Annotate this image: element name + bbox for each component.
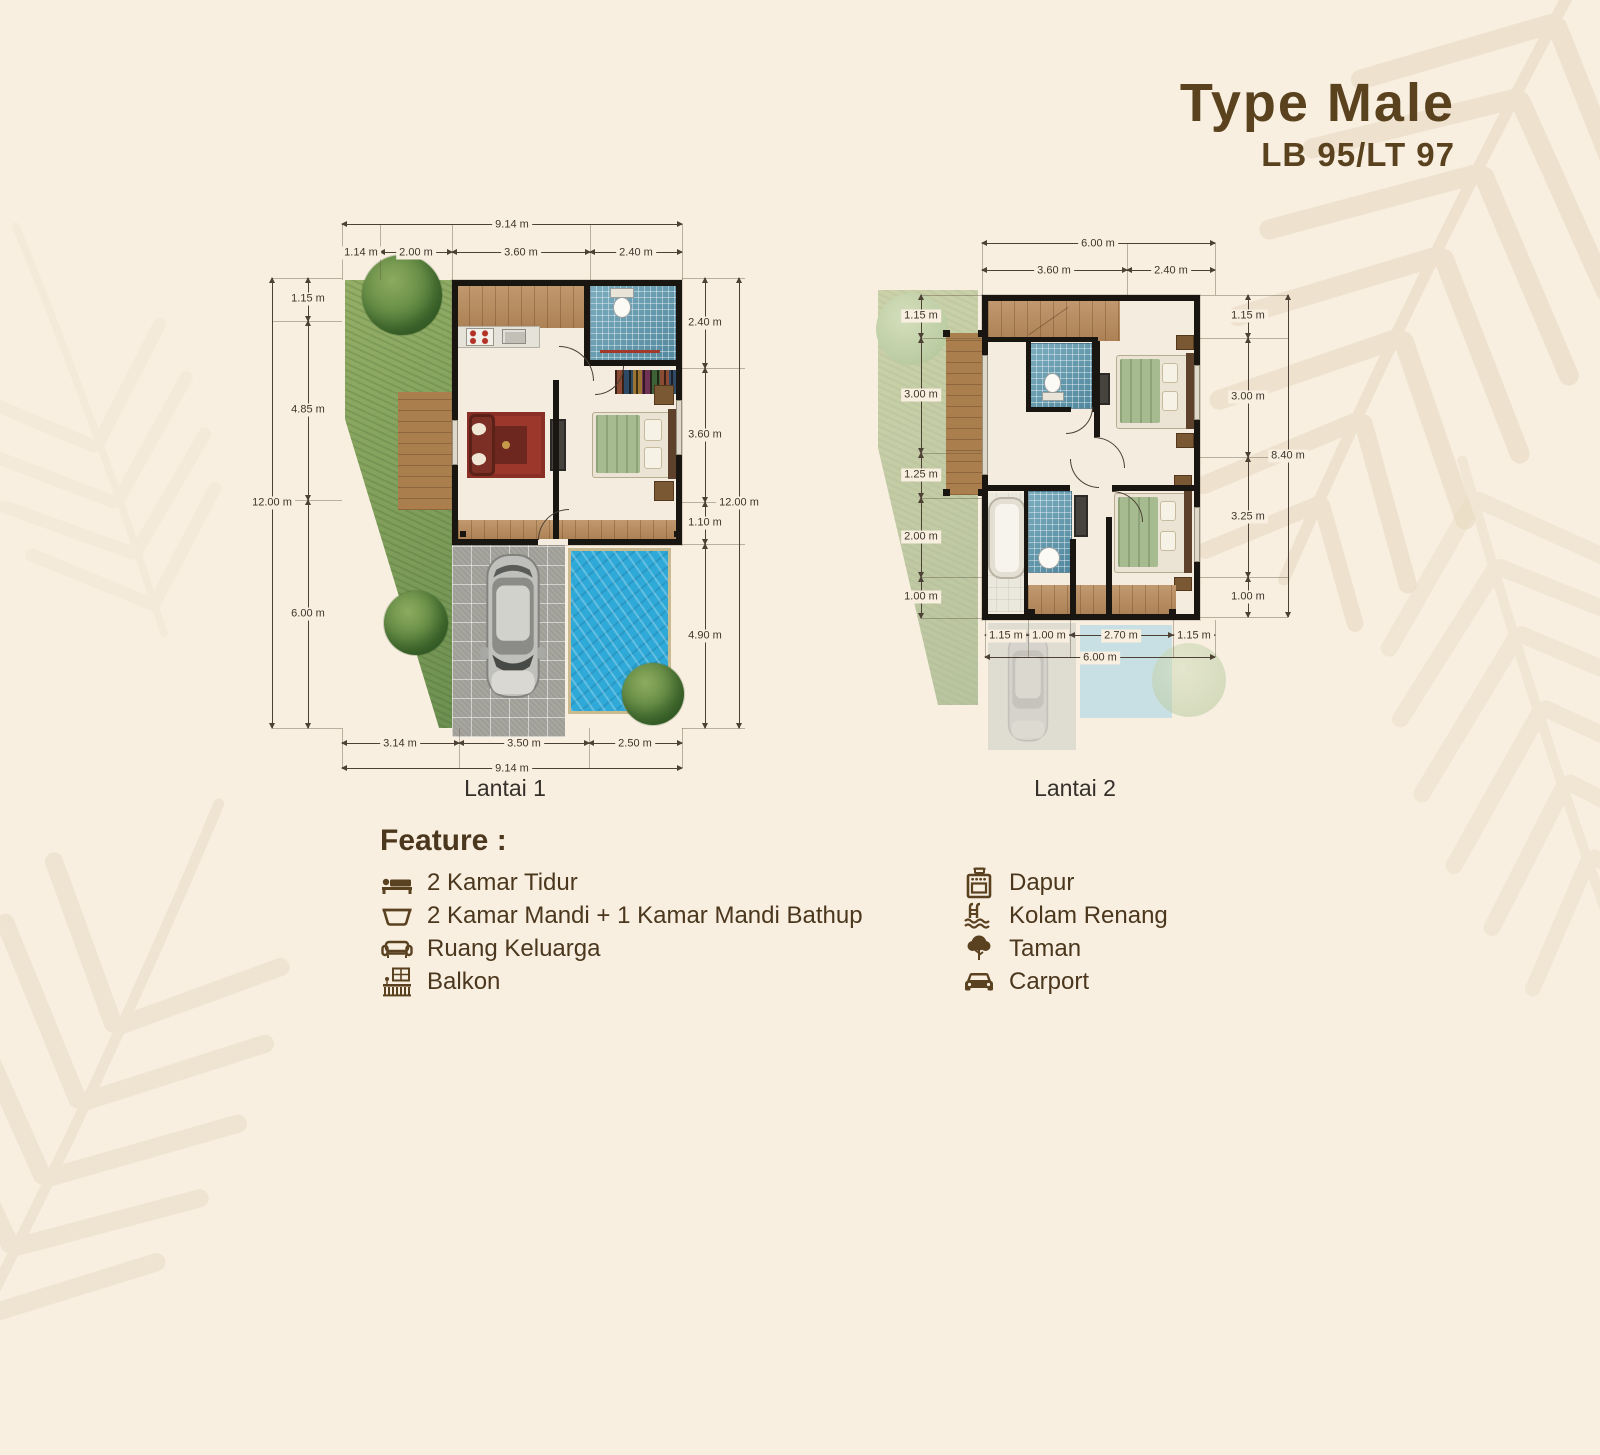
extension-line <box>1215 620 1216 657</box>
dim-label: 1.15 m <box>288 293 328 306</box>
extension-line <box>921 295 982 296</box>
dim-label: 1.00 m <box>1228 591 1268 604</box>
wall <box>982 337 1098 342</box>
extension-line <box>921 577 982 578</box>
balcony-deck <box>946 333 984 495</box>
feature-label: Kolam Renang <box>1009 902 1168 930</box>
dim-label: 2.70 m <box>1101 630 1141 643</box>
palm-shadow-icon <box>1296 392 1600 1068</box>
bed-headboard <box>1186 353 1194 429</box>
dim-label: 2.40 m <box>685 317 725 330</box>
dim-label: 3.60 m <box>685 429 725 442</box>
wall <box>452 539 538 545</box>
feature-item: 2 Kamar Tidur <box>380 866 863 899</box>
wall <box>1026 341 1031 412</box>
tree <box>622 663 684 725</box>
wash-basin <box>1038 547 1060 569</box>
feature-label: Taman <box>1009 935 1081 963</box>
toilet <box>1044 373 1061 393</box>
page-title: Type Male <box>1180 72 1455 134</box>
features-heading: Feature : <box>380 824 507 858</box>
balcony-icon <box>380 967 414 997</box>
car-top-view <box>478 552 548 700</box>
nightstand <box>654 385 674 405</box>
window <box>452 420 458 465</box>
towel-rail <box>600 350 660 353</box>
wall <box>568 539 682 545</box>
window <box>676 400 682 455</box>
plan-label-lantai-1: Lantai 1 <box>464 775 546 802</box>
extension-line <box>921 498 982 499</box>
nightstand <box>1176 335 1194 350</box>
bed-pillow <box>1162 363 1178 383</box>
floorplan-lantai-1: 9.14 m 1.14 m 2.00 m 3.60 m 2.40 m 12.00… <box>250 195 760 805</box>
bed-pillow <box>1162 391 1178 411</box>
extension-line <box>921 618 982 619</box>
wall <box>452 280 458 545</box>
dim-label: 3.00 m <box>1228 391 1268 404</box>
extension-line <box>1200 295 1288 296</box>
extension-line <box>682 368 745 369</box>
extension-line <box>682 728 683 768</box>
nightstand <box>654 481 674 501</box>
dim-label: 8.40 m <box>1268 450 1308 463</box>
feature-label: Ruang Keluarga <box>427 935 600 963</box>
extension-line <box>921 453 982 454</box>
dim-label: 3.50 m <box>504 738 544 751</box>
feature-item: Balkon <box>380 965 863 998</box>
window <box>1194 365 1200 420</box>
stove-icon <box>962 867 996 899</box>
dim-label: 9.14 m <box>492 763 532 776</box>
stairs <box>988 299 1120 341</box>
balcony-post <box>943 330 950 337</box>
bathtub-icon <box>380 903 414 929</box>
feature-label: Balkon <box>427 968 500 996</box>
dim-label: 4.85 m <box>288 404 328 417</box>
dim-label: 3.00 m <box>901 389 941 402</box>
dim-label: 6.00 m <box>288 608 328 621</box>
dim-label: 1.14 m <box>341 247 381 260</box>
wall <box>584 280 590 366</box>
feature-item: 2 Kamar Mandi + 1 Kamar Mandi Bathup <box>380 899 863 932</box>
window <box>1194 507 1200 562</box>
extension-line <box>589 728 590 768</box>
dim-label: 2.00 m <box>901 531 941 544</box>
dim-label: 2.50 m <box>615 738 655 751</box>
extension-line <box>1070 620 1071 657</box>
tree-icon <box>962 934 996 964</box>
wall <box>982 614 1200 620</box>
deck-post <box>460 531 466 537</box>
tree <box>384 591 448 655</box>
dim-label: 1.15 m <box>986 630 1026 643</box>
vanity-cabinet <box>1074 495 1088 537</box>
dim-label: 1.25 m <box>901 469 941 482</box>
feature-label: 2 Kamar Tidur <box>427 869 578 897</box>
extension-line <box>921 338 982 339</box>
page-subtitle: LB 95/LT 97 <box>1261 136 1455 174</box>
wall <box>982 295 1200 301</box>
stairs <box>456 284 588 328</box>
dim-label: 1.00 m <box>1029 630 1069 643</box>
dim-label: 2.40 m <box>616 247 656 260</box>
extension-line <box>682 544 745 545</box>
bed-headboard <box>668 409 676 479</box>
plan-label-lantai-2: Lantai 2 <box>1034 775 1116 802</box>
dim-label: 12.00 m <box>716 497 762 510</box>
dim-label: 1.00 m <box>901 591 941 604</box>
dim-label: 12.00 m <box>249 497 295 510</box>
balcony-deck <box>1028 585 1176 615</box>
feature-item: Carport <box>962 965 1168 998</box>
extension-line <box>459 728 460 768</box>
feature-item: Dapur <box>962 866 1168 899</box>
toilet <box>1042 392 1064 401</box>
garden-deck <box>398 392 452 510</box>
extension-line <box>1200 577 1288 578</box>
kitchen-sink <box>502 329 526 344</box>
wall <box>1026 407 1071 412</box>
bed-blanket <box>1120 359 1160 423</box>
wall <box>1094 341 1100 437</box>
floorplan-lantai-2: 6.00 m 3.60 m 2.40 m 1.15 m 3.00 m 1.25 … <box>870 195 1330 805</box>
dim-label: 1.15 m <box>1228 310 1268 323</box>
dim-label: 3.60 m <box>501 247 541 260</box>
dim-label: 3.25 m <box>1228 511 1268 524</box>
wall <box>1106 517 1112 614</box>
nightstand <box>1174 577 1192 591</box>
dim-label: 3.14 m <box>380 738 420 751</box>
dim-label: 3.60 m <box>1034 265 1074 278</box>
dim-label: 1.15 m <box>1174 630 1214 643</box>
bed-pillow <box>644 419 662 441</box>
dim-label: 2.00 m <box>396 247 436 260</box>
balcony-post <box>943 489 950 496</box>
wall <box>452 280 682 286</box>
bathtub <box>988 497 1026 579</box>
tree-faded <box>876 293 948 365</box>
wall <box>1024 491 1028 614</box>
wall <box>1070 539 1076 614</box>
bed-pillow <box>1160 531 1176 551</box>
bed-blanket <box>596 415 640 473</box>
nightstand <box>1176 433 1194 448</box>
balcony-door <box>982 355 988 475</box>
feature-label: 2 Kamar Mandi + 1 Kamar Mandi Bathup <box>427 902 863 930</box>
feature-label: Dapur <box>1009 869 1074 897</box>
extension-line <box>1200 617 1288 618</box>
feature-item: Taman <box>962 932 1168 965</box>
dim-label: 6.00 m <box>1080 652 1120 665</box>
tree <box>362 255 442 335</box>
toilet <box>613 297 631 318</box>
feature-label: Carport <box>1009 968 1089 996</box>
terrace-deck <box>458 520 682 539</box>
dim-label: 2.40 m <box>1151 265 1191 278</box>
wall <box>1112 485 1200 491</box>
sofa-icon <box>380 936 414 962</box>
bed-headboard <box>1184 491 1192 573</box>
dim-label: 1.15 m <box>901 310 941 323</box>
pool-icon <box>962 901 996 931</box>
brochure-page: { "header": { "title": "Type Male", "sub… <box>0 0 1600 1131</box>
bed-pillow <box>1160 501 1176 521</box>
features-list-left: 2 Kamar Tidur 2 Kamar Mandi + 1 Kamar Ma… <box>380 866 863 998</box>
bed-icon <box>380 870 414 896</box>
features-list-right: Dapur Kolam Renang Taman Carport <box>962 866 1168 998</box>
feature-item: Kolam Renang <box>962 899 1168 932</box>
dim-label: 6.00 m <box>1078 238 1118 251</box>
dim-label: 4.90 m <box>685 630 725 643</box>
extension-line <box>342 728 343 768</box>
rug-medallion <box>502 441 510 449</box>
dim-label: 1.10 m <box>685 517 725 530</box>
dim-label: 9.14 m <box>492 219 532 232</box>
stove-top <box>466 328 494 346</box>
car-icon <box>962 969 996 995</box>
palm-shadow-icon <box>0 705 406 1454</box>
extension-line <box>1200 338 1288 339</box>
bed-pillow <box>644 447 662 469</box>
feature-item: Ruang Keluarga <box>380 932 863 965</box>
